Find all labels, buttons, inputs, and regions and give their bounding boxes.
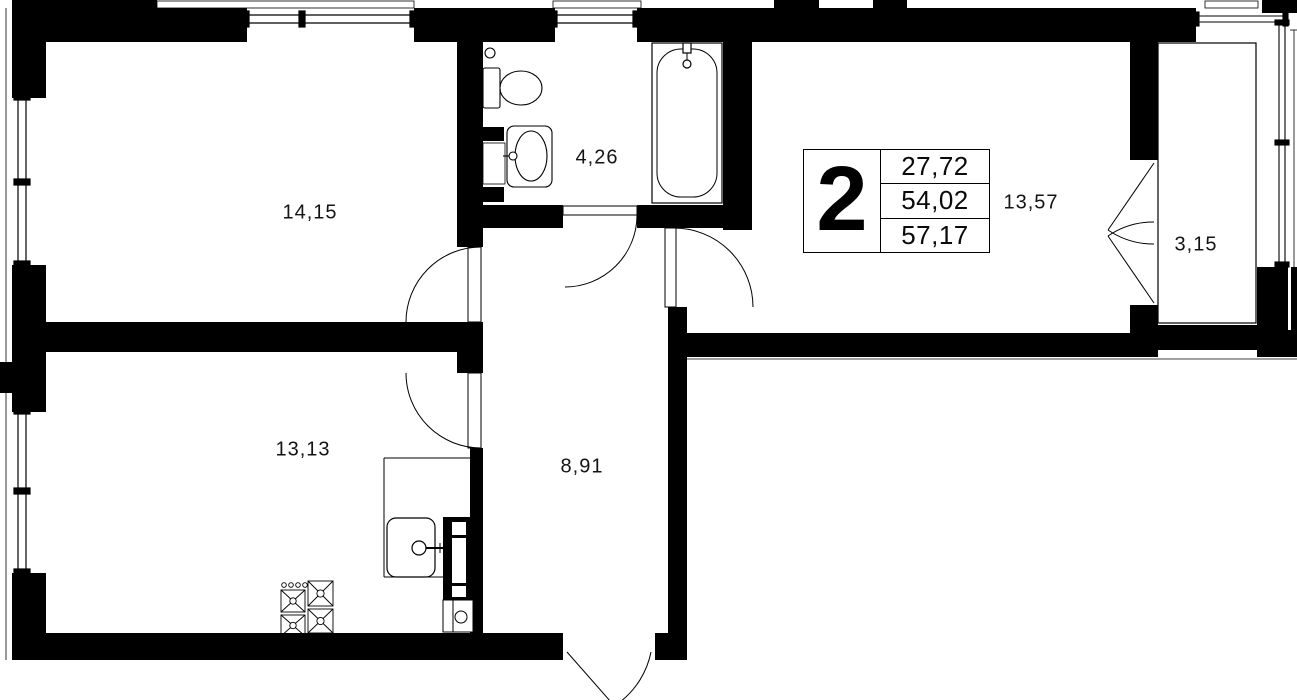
doors [406, 163, 1154, 700]
hallway-area-label: 8,91 [561, 456, 604, 479]
entry-door-arc [620, 652, 651, 700]
door-arc-living [674, 228, 753, 307]
kitchen-sink-icon [387, 518, 443, 577]
washbasin-icon [503, 126, 552, 187]
entry-door-leaf [567, 652, 618, 700]
kitchen-area-label: 13,13 [275, 439, 330, 462]
floor-plan-drawing [0, 0, 1297, 700]
floor-plan: 14,15 4,26 13,57 3,15 13,13 8,91 2 27,72… [0, 0, 1297, 700]
unit-areas: 27,72 54,02 57,17 [881, 150, 989, 252]
toilet-icon [483, 48, 542, 108]
unit-living-area: 27,72 [881, 150, 989, 183]
bathroom-area-label: 4,26 [576, 147, 619, 170]
stove-icon [281, 581, 333, 636]
unit-info-box: 2 27,72 54,02 57,17 [803, 149, 990, 253]
unit-rooms-count: 2 [804, 150, 881, 252]
balcony-area-label: 3,15 [1175, 234, 1218, 257]
vent-duct-icon [443, 600, 473, 632]
unit-main-area: 54,02 [881, 183, 989, 217]
living-area-label: 13,57 [1003, 192, 1058, 215]
unit-total-area: 57,17 [881, 218, 989, 252]
bathtub-icon [652, 43, 722, 203]
walls [0, 0, 1297, 660]
room1-area-label: 14,15 [282, 202, 337, 225]
door-arc-bathroom [565, 215, 637, 287]
